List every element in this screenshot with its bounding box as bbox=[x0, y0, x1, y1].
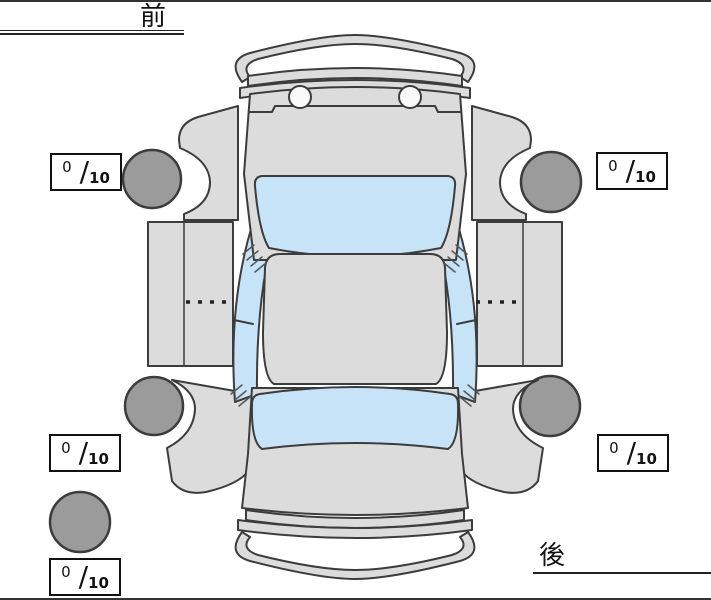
tread-score-value: 0 bbox=[608, 157, 618, 175]
car-top-view-diagram bbox=[0, 2, 711, 600]
tread-score-box-front-left: 0 / 10 bbox=[50, 153, 122, 191]
tread-score-max: 10 bbox=[89, 169, 110, 187]
tread-score-max: 10 bbox=[88, 574, 109, 592]
windshield bbox=[255, 176, 455, 257]
tread-score-separator: / bbox=[79, 563, 88, 591]
tread-score-max: 10 bbox=[636, 450, 657, 468]
vehicle-condition-diagram-page: 前 後 bbox=[0, 0, 711, 600]
hood-washer-nozzle-right bbox=[399, 86, 421, 108]
tread-score-separator: / bbox=[79, 439, 88, 467]
tread-score-box-rear-left: 0 / 10 bbox=[49, 434, 121, 472]
rear-window bbox=[252, 387, 458, 449]
tire-front-left bbox=[123, 150, 181, 208]
tread-score-max: 10 bbox=[635, 168, 656, 186]
fender-front-right bbox=[472, 106, 531, 220]
tread-score-separator: / bbox=[626, 157, 635, 185]
tread-score-separator: / bbox=[627, 439, 636, 467]
fender-front-left bbox=[179, 106, 238, 220]
tread-score-value: 0 bbox=[61, 563, 71, 581]
spare-tire bbox=[50, 492, 110, 552]
tread-score-separator: / bbox=[80, 158, 89, 186]
tire-front-right bbox=[521, 152, 581, 212]
roof bbox=[263, 254, 447, 384]
tread-score-value: 0 bbox=[609, 439, 619, 457]
tread-score-box-front-right: 0 / 10 bbox=[596, 152, 668, 190]
tire-rear-left bbox=[125, 377, 183, 435]
tread-score-box-spare: 0 / 10 bbox=[49, 558, 121, 596]
rear-bumper bbox=[236, 532, 475, 579]
door-panel-left bbox=[148, 222, 233, 366]
tread-score-box-rear-right: 0 / 10 bbox=[597, 434, 669, 472]
hood-washer-nozzle-left bbox=[289, 86, 311, 108]
tread-score-max: 10 bbox=[88, 450, 109, 468]
tread-score-value: 0 bbox=[62, 158, 72, 176]
tread-score-value: 0 bbox=[61, 439, 71, 457]
door-panel-right bbox=[477, 222, 562, 366]
